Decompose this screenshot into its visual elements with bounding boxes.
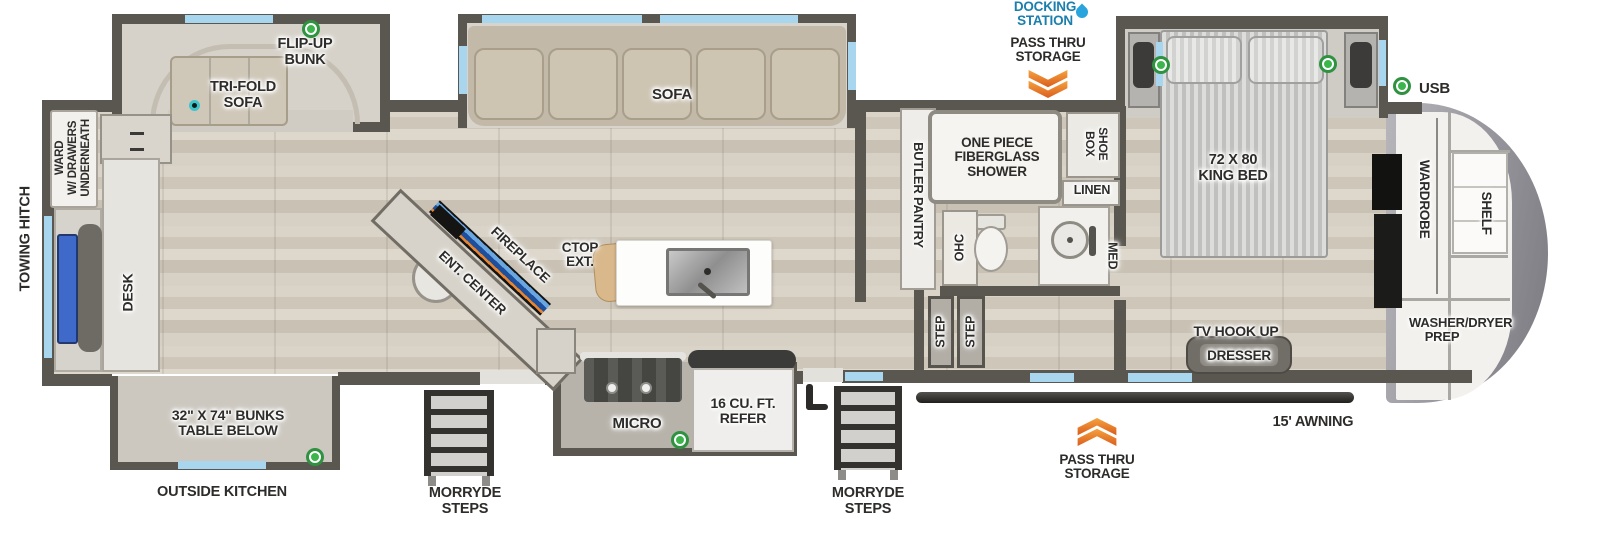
sofa-window — [660, 15, 798, 23]
med-label: MED — [1105, 233, 1118, 279]
sofa-side-window — [459, 46, 467, 94]
morryde-steps — [834, 386, 902, 470]
sofa-cushion — [548, 48, 618, 120]
bunk-window — [178, 461, 266, 469]
lower-cabinet — [536, 328, 576, 374]
wardrobe-label: WARDROBE — [1417, 139, 1431, 259]
stove-knob — [606, 382, 618, 394]
cabinet-handle — [130, 148, 144, 151]
pillow — [1248, 36, 1324, 84]
top-wall — [388, 100, 460, 112]
awning-bar — [916, 392, 1354, 403]
sofa-label: SOFA — [637, 87, 707, 103]
dresser-label: DRESSER — [1194, 349, 1284, 363]
ohc-label: OHC — [953, 223, 966, 273]
overhead-cabinet — [100, 114, 172, 164]
sofa-cushion — [474, 48, 544, 120]
top-wall — [1386, 102, 1422, 114]
morryde-steps-label: MORRYDE STEPS — [419, 486, 511, 517]
sofa-cushion — [770, 48, 840, 120]
desk-chair-back — [78, 224, 102, 352]
morryde-steps — [424, 390, 494, 476]
sofa-window — [482, 15, 642, 23]
ward-label-line: W/ DRAWERS — [67, 110, 80, 206]
pass-thru-storage-label: PASS THRU STORAGE — [1049, 453, 1145, 482]
step-label: STEP — [964, 304, 977, 360]
green-led-dot — [1155, 59, 1167, 71]
pillow — [1166, 36, 1242, 84]
outside-kitchen-label: OUTSIDE KITCHEN — [107, 485, 337, 501]
closet-divider — [1396, 298, 1510, 301]
refer-label: 16 CU. FT. REFER — [699, 396, 787, 426]
sofa-cushion — [696, 48, 766, 120]
range-stove — [584, 358, 682, 402]
bath-sink-drain — [1067, 237, 1073, 243]
rear-wall-window — [44, 216, 52, 358]
bottom-wall-window — [1030, 373, 1074, 382]
tv-hook-up-label: TV HOOK UP — [1176, 324, 1296, 339]
step-label: STEP — [934, 304, 947, 360]
morryde-steps-label: MORRYDE STEPS — [822, 486, 914, 517]
pantry-wall — [855, 106, 866, 302]
stove-knob — [640, 382, 652, 394]
loft-window — [185, 15, 273, 23]
cabinet-handle — [130, 132, 144, 135]
refrigerator-top — [688, 350, 796, 370]
nightstand-window — [1350, 42, 1372, 88]
desk-label: DESK — [121, 262, 136, 322]
step-foot — [838, 470, 846, 480]
washer-dryer-label: WASHER/DRYER PREP — [1409, 316, 1475, 344]
ward-label-line: WARD — [54, 110, 67, 206]
green-led-dot — [1396, 80, 1408, 92]
ward-label: WARD W/ DRAWERS UNDERNEATH — [54, 110, 94, 206]
bottom-wall — [42, 374, 112, 386]
linen-label: LINEN — [1062, 184, 1122, 197]
bedroom-mirror — [1374, 214, 1402, 308]
bunks-label: 32" X 74" BUNKS TABLE BELOW — [164, 408, 292, 438]
towing-hitch-label: TOWING HITCH — [18, 169, 34, 309]
pass-thru-arrow-up-icon — [1075, 418, 1119, 446]
pass-thru-storage-label: PASS THRU STORAGE — [1000, 36, 1096, 65]
green-led-dot — [674, 434, 686, 446]
teal-dot — [189, 100, 200, 111]
flip-up-bunk-label: FLIP-UP BUNK — [261, 37, 349, 68]
closet-divider — [1448, 255, 1508, 258]
desk-chair — [57, 234, 78, 344]
green-led-dot — [305, 23, 317, 35]
bottom-wall-window — [845, 372, 883, 381]
rv-floorplan: TRI-FOLD SOFA FLIP-UP BUNK SOFA 72 X 80 … — [0, 0, 1600, 538]
king-bed-label: 72 X 80 KING BED — [1198, 153, 1268, 184]
ctop-ext-label: CTOP EXT. — [556, 241, 604, 270]
sink-drain — [704, 268, 711, 275]
bed-side-window — [1379, 40, 1386, 86]
sofa-cushion — [622, 48, 692, 120]
usb-label: USB — [1419, 81, 1450, 97]
bottom-wall — [338, 372, 480, 385]
step-foot — [890, 470, 898, 480]
bedroom-divider-wall — [1114, 300, 1126, 374]
docking-station-label: DOCKING STATION — [1002, 0, 1088, 29]
sofa-side-window — [848, 42, 856, 90]
butler-pantry-label: BUTLER PANTRY — [911, 115, 925, 275]
shelf-label: SHELF — [1479, 178, 1493, 248]
bath-faucet — [1089, 226, 1096, 256]
wardrobe-rod — [1436, 118, 1438, 294]
green-led-dot — [309, 451, 321, 463]
toilet — [974, 226, 1008, 272]
awning-label: 15' AWNING — [1258, 415, 1368, 431]
tri-fold-sofa-label: TRI-FOLD SOFA — [195, 80, 291, 111]
bottom-wall-window — [1128, 373, 1192, 382]
shoe-box-label: SHOE BOX — [1083, 119, 1109, 169]
bath-step-wall — [914, 290, 924, 370]
shower-label: ONE PIECE FIBERGLASS SHOWER — [941, 136, 1053, 179]
ward-label-line: UNDERNEATH — [81, 110, 94, 206]
micro-label: MICRO — [602, 416, 672, 432]
pass-thru-arrow-down-icon — [1026, 70, 1070, 98]
green-led-dot — [1322, 58, 1334, 70]
bath-bottom-wall — [940, 286, 1120, 296]
nightstand-window — [1133, 42, 1154, 88]
entry-grab-handle — [806, 404, 828, 410]
entry-door-threshold — [803, 368, 843, 382]
bedroom-tv — [1372, 154, 1402, 210]
